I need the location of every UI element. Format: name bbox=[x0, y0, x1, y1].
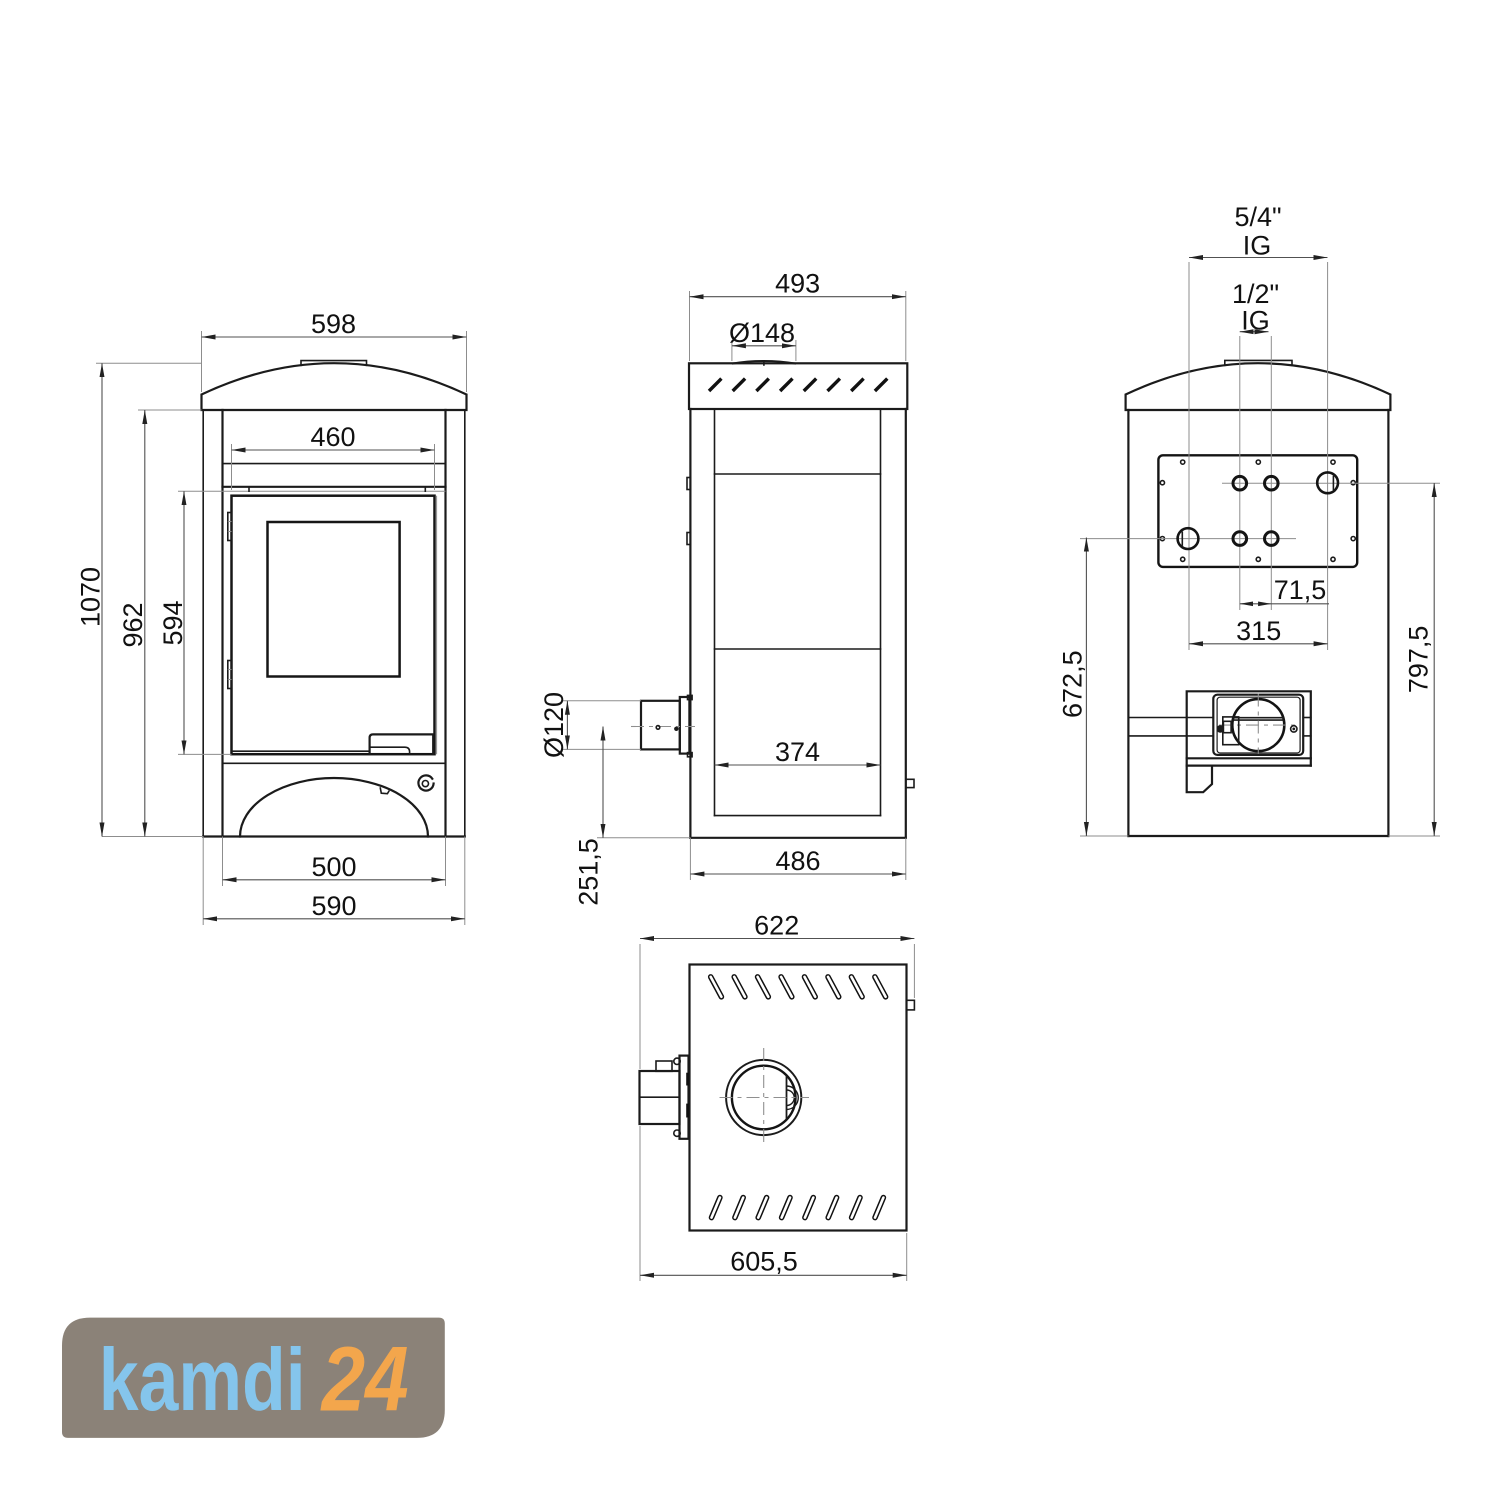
svg-text:1/2": 1/2" bbox=[1232, 279, 1279, 309]
svg-text:IG: IG bbox=[1241, 306, 1270, 336]
svg-text:486: 486 bbox=[775, 846, 820, 876]
svg-text:374: 374 bbox=[775, 737, 820, 767]
svg-text:251,5: 251,5 bbox=[573, 838, 603, 906]
svg-text:622: 622 bbox=[754, 911, 799, 941]
svg-text:797,5: 797,5 bbox=[1404, 626, 1434, 694]
svg-text:460: 460 bbox=[310, 422, 355, 452]
svg-text:605,5: 605,5 bbox=[730, 1246, 798, 1276]
svg-text:598: 598 bbox=[311, 309, 356, 339]
svg-text:1070: 1070 bbox=[75, 567, 105, 627]
svg-text:kamdi: kamdi bbox=[99, 1330, 306, 1429]
svg-text:500: 500 bbox=[311, 852, 356, 882]
svg-text:962: 962 bbox=[118, 602, 148, 647]
svg-text:71,5: 71,5 bbox=[1274, 575, 1327, 605]
svg-text:594: 594 bbox=[158, 600, 188, 645]
svg-text:672,5: 672,5 bbox=[1057, 650, 1087, 718]
svg-text:590: 590 bbox=[311, 891, 356, 921]
svg-text:315: 315 bbox=[1236, 616, 1281, 646]
svg-text:493: 493 bbox=[775, 269, 820, 299]
svg-text:5/4": 5/4" bbox=[1234, 202, 1281, 232]
svg-text:24: 24 bbox=[320, 1329, 409, 1431]
svg-text:Ø120: Ø120 bbox=[539, 692, 569, 758]
svg-text:IG: IG bbox=[1243, 231, 1272, 261]
svg-text:Ø148: Ø148 bbox=[729, 318, 795, 348]
